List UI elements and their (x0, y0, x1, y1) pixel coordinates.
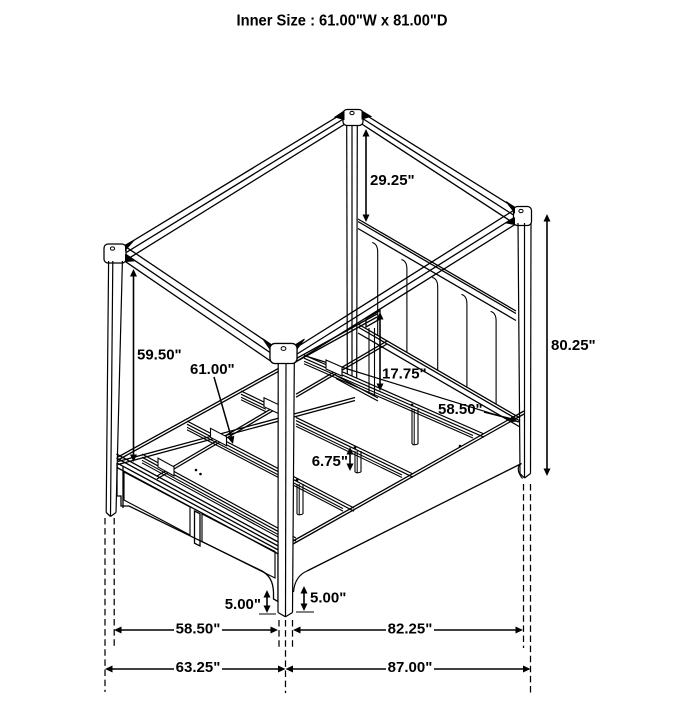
svg-text:5.00": 5.00" (310, 590, 346, 607)
svg-text:Inner Size : 61.00"W x 81.00"D: Inner Size : 61.00"W x 81.00"D (237, 13, 448, 30)
svg-text:58.50": 58.50" (176, 621, 221, 638)
svg-text:5.00": 5.00" (225, 596, 261, 613)
svg-text:61.00": 61.00" (190, 361, 235, 378)
svg-text:82.25": 82.25" (388, 621, 433, 638)
svg-text:58.50": 58.50" (438, 401, 483, 418)
svg-text:59.50": 59.50" (137, 347, 182, 364)
svg-text:17.75": 17.75" (382, 366, 427, 383)
svg-text:63.25": 63.25" (176, 659, 221, 676)
svg-text:29.25": 29.25" (370, 172, 415, 189)
svg-text:80.25": 80.25" (551, 337, 596, 354)
svg-text:6.75": 6.75" (312, 453, 348, 470)
svg-text:87.00": 87.00" (388, 659, 433, 676)
